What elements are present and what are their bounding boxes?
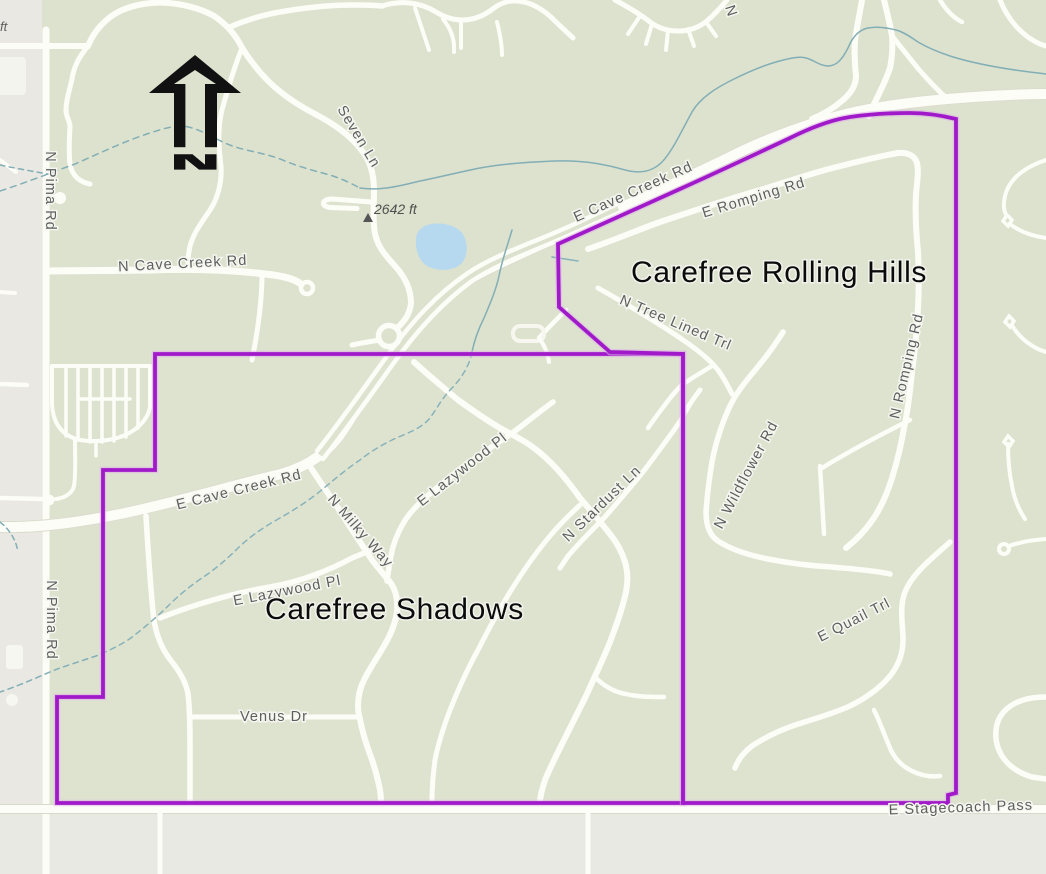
svg-text:2642 ft: 2642 ft bbox=[373, 201, 418, 217]
svg-text:Carefree Shadows: Carefree Shadows bbox=[265, 593, 524, 626]
svg-text:Carefree Rolling Hills: Carefree Rolling Hills bbox=[631, 256, 927, 289]
svg-text:N Pima Rd: N Pima Rd bbox=[42, 151, 58, 231]
svg-text:Venus Dr: Venus Dr bbox=[240, 709, 308, 725]
svg-text:N Pima Rd: N Pima Rd bbox=[43, 580, 59, 660]
